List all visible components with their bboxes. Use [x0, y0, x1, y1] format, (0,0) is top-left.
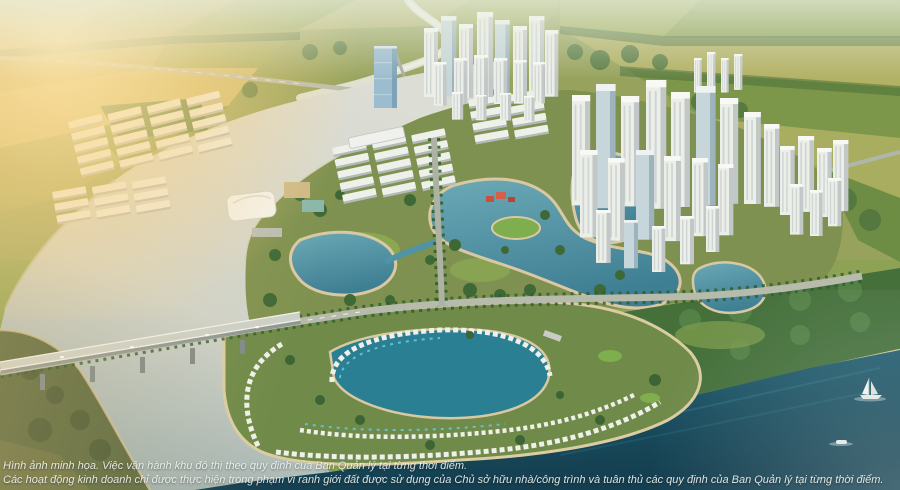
blue-glass-tower	[374, 46, 397, 108]
aerial-render: Hình ảnh minh họa. Việc vận hành khu đô …	[0, 0, 900, 490]
disclaimer: Hình ảnh minh họa. Việc vận hành khu đô …	[3, 459, 883, 487]
lawn-island	[492, 217, 540, 239]
sales-gallery	[226, 190, 277, 222]
disclaimer-line-1: Hình ảnh minh họa. Việc vận hành khu đô …	[3, 459, 883, 473]
disclaimer-line-2: Các hoạt động kinh doanh chỉ được thực h…	[3, 473, 883, 487]
